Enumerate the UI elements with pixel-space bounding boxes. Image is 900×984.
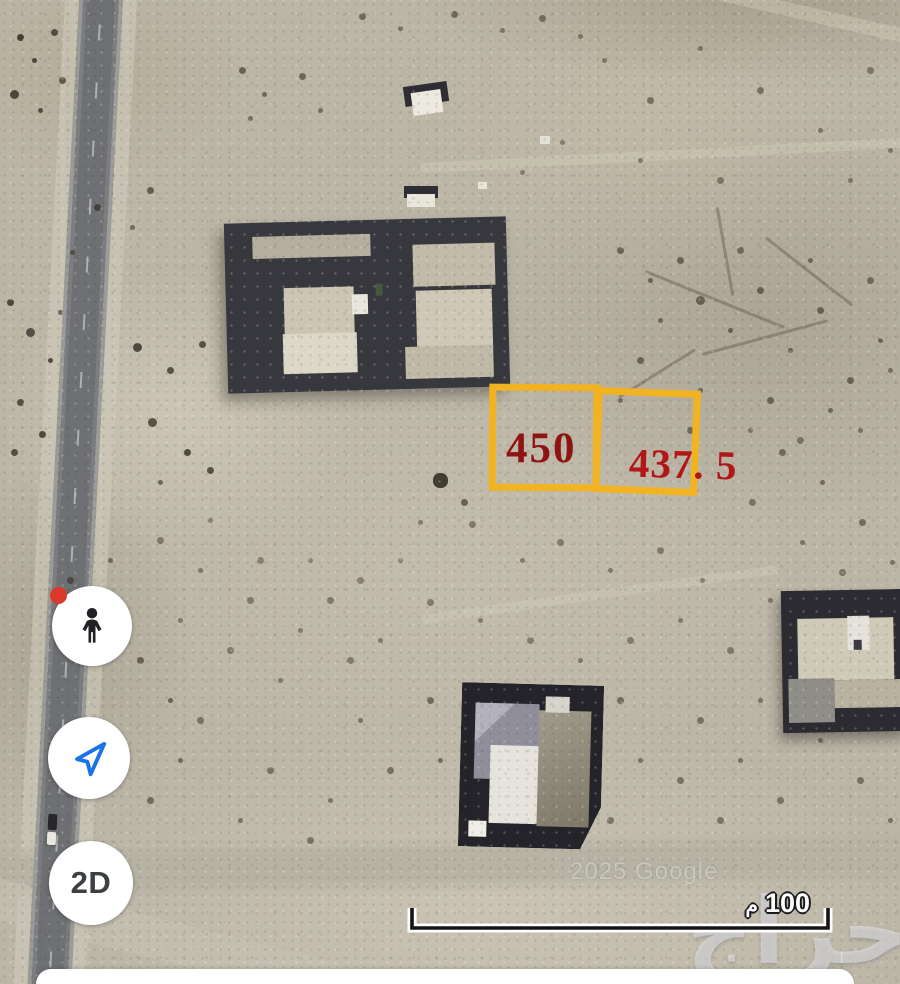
navigation-arrow-icon [63, 732, 115, 784]
shed [407, 194, 435, 207]
desert-track [420, 137, 900, 173]
desert-track [524, 0, 900, 52]
scale-distance: 100 [765, 888, 810, 919]
building-compound-bottom [458, 682, 604, 850]
plot-area-label: 437. 5 [628, 439, 738, 490]
shed [411, 89, 444, 116]
pegman-icon [71, 605, 113, 647]
vegetation-speckles [0, 0, 5, 5]
white-object [540, 136, 550, 144]
scale-unit: م [746, 893, 758, 918]
scale-bar-label: م 100 [746, 888, 810, 919]
dark-trail [716, 207, 735, 296]
building-right-edge [781, 589, 900, 733]
street-view-available-badge [50, 587, 67, 604]
dark-trail [702, 319, 828, 356]
dark-trail [765, 236, 854, 306]
map-mode-label: 2D [71, 865, 112, 901]
desert-track [421, 565, 779, 624]
vehicle-light [47, 832, 57, 845]
plot-area-label: 450 [506, 424, 577, 473]
scale-bar: م 100 [406, 896, 834, 936]
map-canvas[interactable]: 450 437. 5 2025 Google حراج م 100 2D [0, 0, 900, 984]
vehicle-dark [48, 814, 58, 830]
white-object [478, 182, 487, 189]
my-location-button[interactable] [48, 717, 130, 799]
map-mode-2d-button[interactable]: 2D [49, 841, 133, 925]
building-complex-top [224, 216, 510, 393]
dark-trail [645, 270, 785, 329]
bottom-sheet-handle[interactable] [36, 969, 854, 984]
